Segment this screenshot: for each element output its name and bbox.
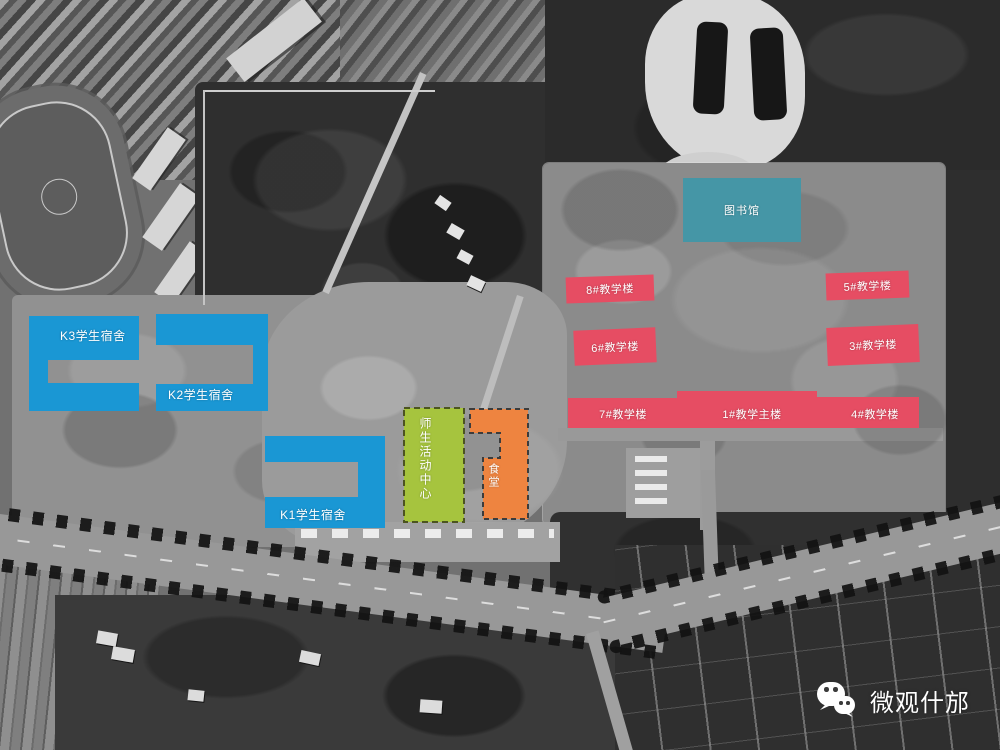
wechat-icon (817, 680, 861, 720)
zone-label: 1#教学主楼 (722, 406, 781, 422)
zone-teaching-building-5: 5#教学楼 (826, 271, 910, 301)
zone-teaching-building-3: 3#教学楼 (826, 324, 920, 366)
zone-label: 图书馆 (724, 202, 760, 218)
activity-center-shape (403, 407, 465, 523)
boundary-wall (205, 90, 435, 92)
zone-teaching-building-8: 8#教学楼 (566, 274, 655, 303)
zone-label: K3学生宿舍 (60, 327, 126, 344)
zone-label: 6#教学楼 (591, 337, 639, 355)
campus-road (558, 428, 943, 441)
watermark: 微观什邡 (817, 680, 970, 720)
zone-label: 8#教学楼 (586, 280, 634, 298)
zone-label: K1学生宿舍 (280, 506, 346, 523)
zone-label: 5#教学楼 (843, 277, 891, 295)
watermark-text: 微观什邡 (870, 683, 970, 718)
zone-label: 4#教学楼 (851, 406, 899, 422)
zone-teaching-building-6: 6#教学楼 (573, 327, 656, 366)
zone-label: K2学生宿舍 (168, 386, 234, 403)
pond (750, 27, 788, 121)
wechat-bubble-small (834, 696, 855, 714)
zone-label: 3#教学楼 (849, 336, 897, 354)
zone-library: 图书馆 (683, 178, 801, 242)
zone-label: 食堂 (485, 463, 501, 489)
excavation-area (645, 0, 805, 170)
campus-parking-lot (626, 448, 704, 518)
zone-activity-center: 师生活动中心 (403, 407, 465, 523)
pond (693, 21, 729, 114)
zone-label: 7#教学楼 (599, 406, 647, 422)
school-building (142, 183, 200, 251)
zone-label: 师生活动中心 (417, 417, 434, 501)
village-house (420, 699, 443, 714)
zone-canteen: 食堂 (469, 408, 530, 521)
village-house (187, 689, 204, 702)
boundary-wall (203, 90, 205, 305)
aerial-campus-map: K3学生宿舍 K2学生宿舍 K1学生宿舍 师生活动中心 食堂 图书馆 8#教学楼… (0, 0, 1000, 750)
